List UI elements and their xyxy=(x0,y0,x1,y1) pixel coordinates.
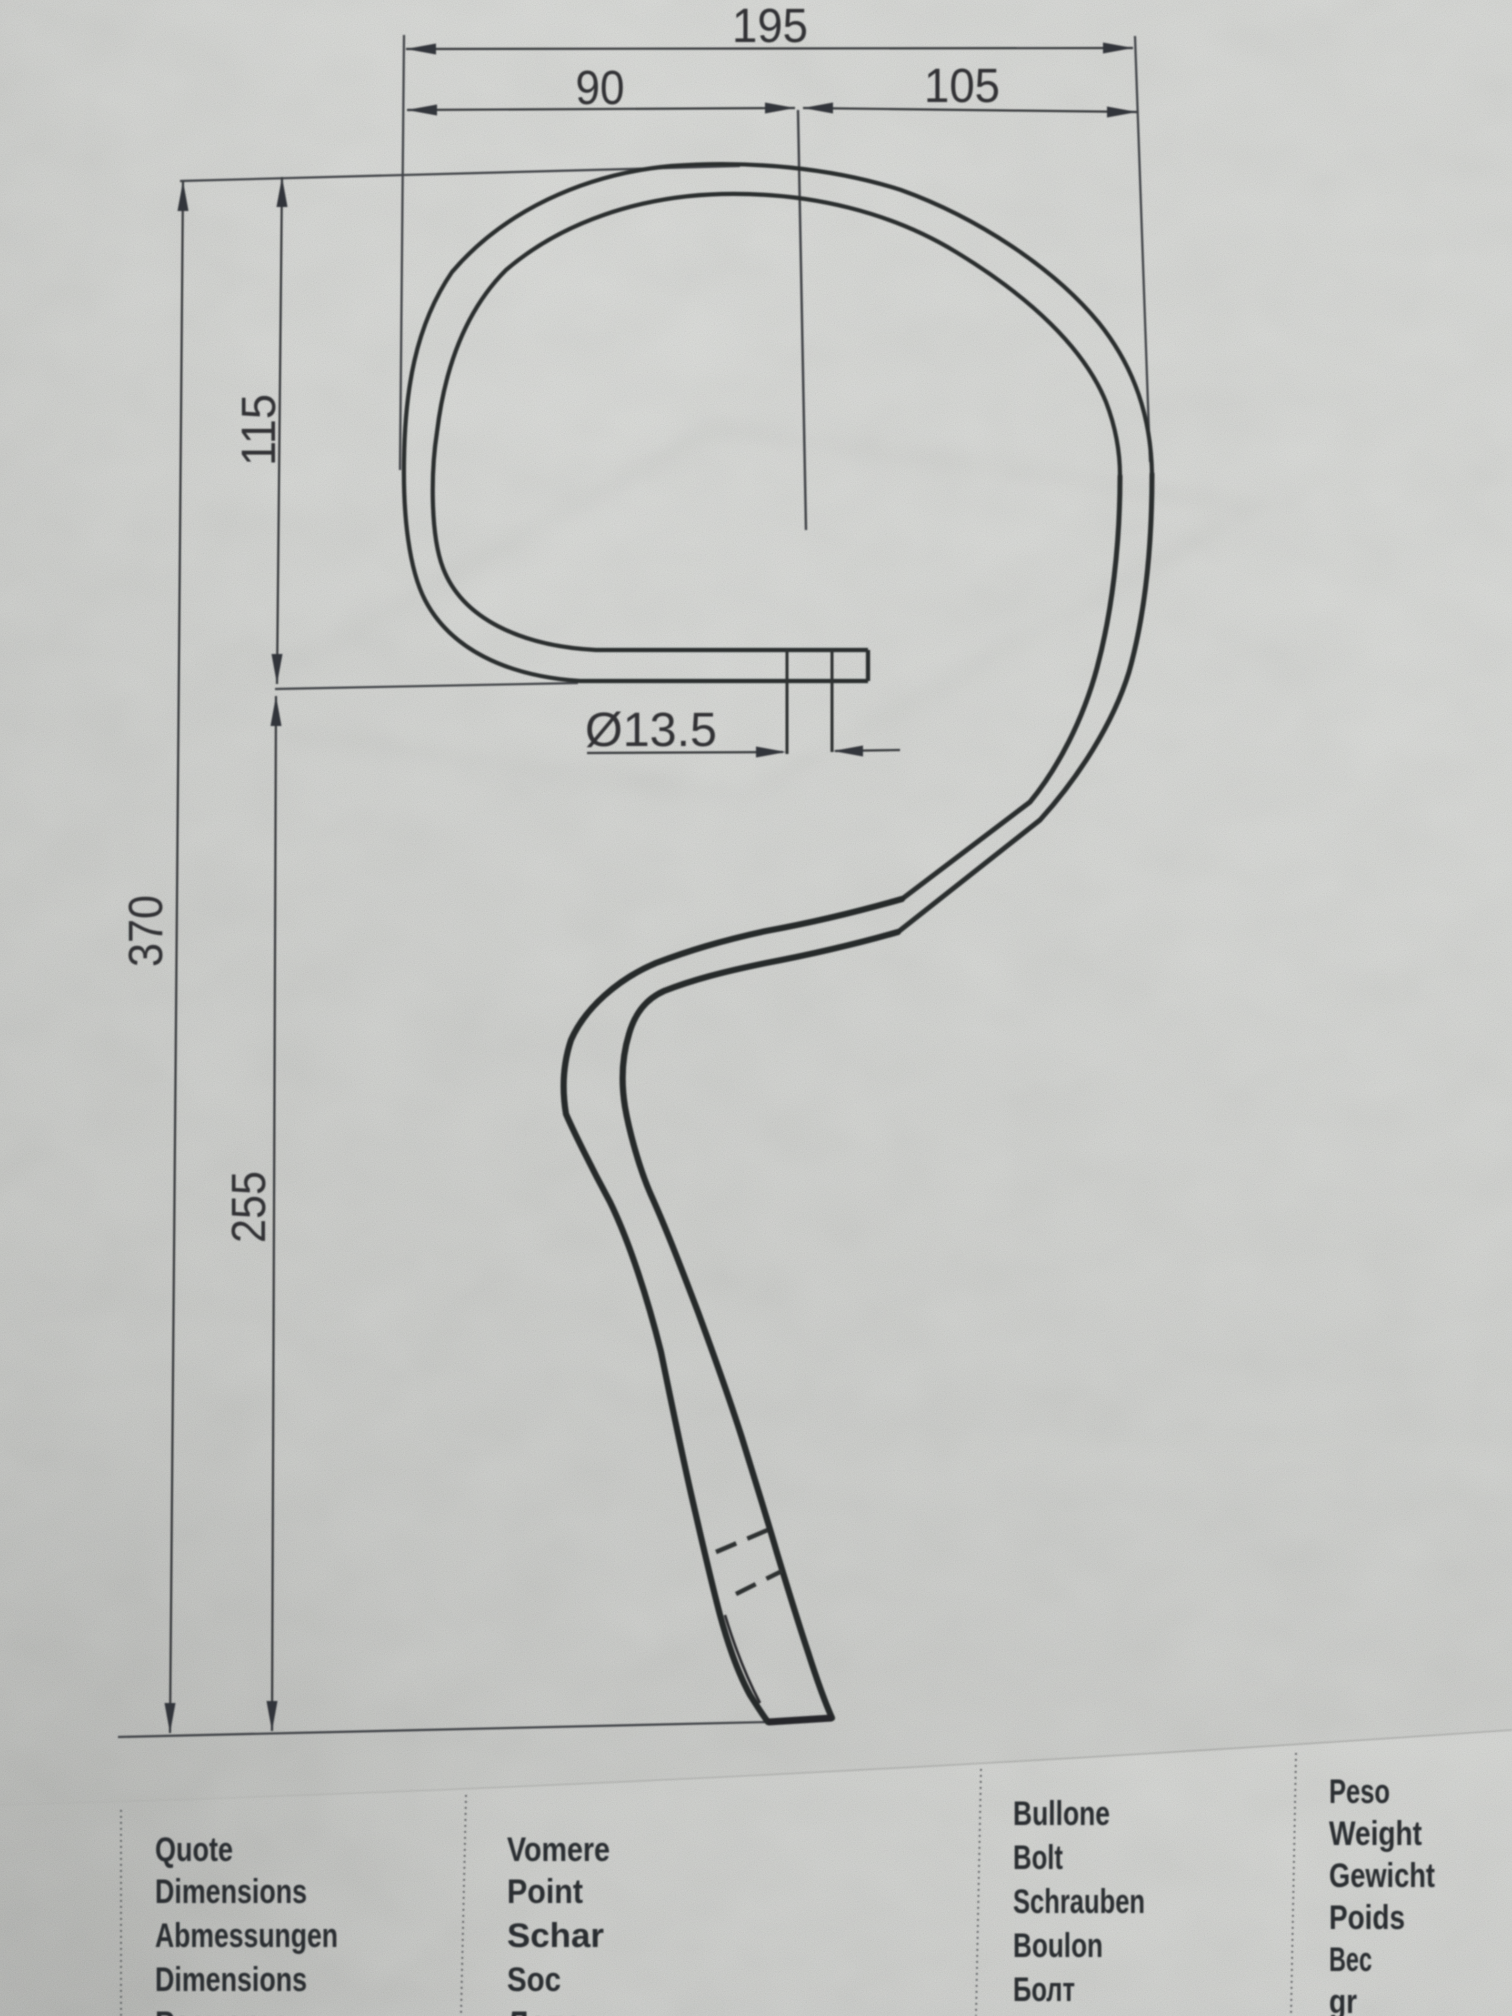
svg-text:Abmessungen: Abmessungen xyxy=(155,1917,338,1955)
svg-text:Gewicht: Gewicht xyxy=(1329,1857,1435,1895)
svg-text:Ø13.5: Ø13.5 xyxy=(585,704,717,757)
svg-text:Soc: Soc xyxy=(507,1961,561,1999)
svg-text:Poids: Poids xyxy=(1329,1899,1405,1937)
svg-text:Quote: Quote xyxy=(155,1831,233,1869)
svg-text:90: 90 xyxy=(576,62,625,115)
svg-text:Vomere: Vomere xyxy=(507,1831,610,1869)
svg-text:gr: gr xyxy=(1329,1983,1357,2016)
svg-text:Лапа: Лапа xyxy=(507,2005,583,2016)
svg-text:Peso: Peso xyxy=(1329,1773,1390,1811)
svg-text:Boulon: Boulon xyxy=(1013,1927,1103,1965)
svg-text:Weight: Weight xyxy=(1329,1815,1422,1853)
svg-text:Dimensions: Dimensions xyxy=(155,1961,307,1999)
svg-text:Bec: Bec xyxy=(1329,1941,1372,1979)
svg-text:Болт: Болт xyxy=(1013,1971,1075,2009)
svg-text:Bolt: Bolt xyxy=(1013,1839,1063,1877)
svg-text:255: 255 xyxy=(223,1171,276,1243)
svg-text:195: 195 xyxy=(732,0,808,53)
svg-text:370: 370 xyxy=(120,895,173,967)
svg-text:Dimensions: Dimensions xyxy=(155,1873,307,1911)
svg-text:Schar: Schar xyxy=(507,1917,604,1955)
svg-text:Bullone: Bullone xyxy=(1013,1795,1110,1833)
svg-text:Размеры: Размеры xyxy=(155,2005,285,2016)
svg-text:105: 105 xyxy=(924,60,1000,113)
svg-text:115: 115 xyxy=(233,394,286,466)
svg-text:Point: Point xyxy=(507,1873,583,1911)
svg-text:Schrauben: Schrauben xyxy=(1013,1883,1145,1921)
